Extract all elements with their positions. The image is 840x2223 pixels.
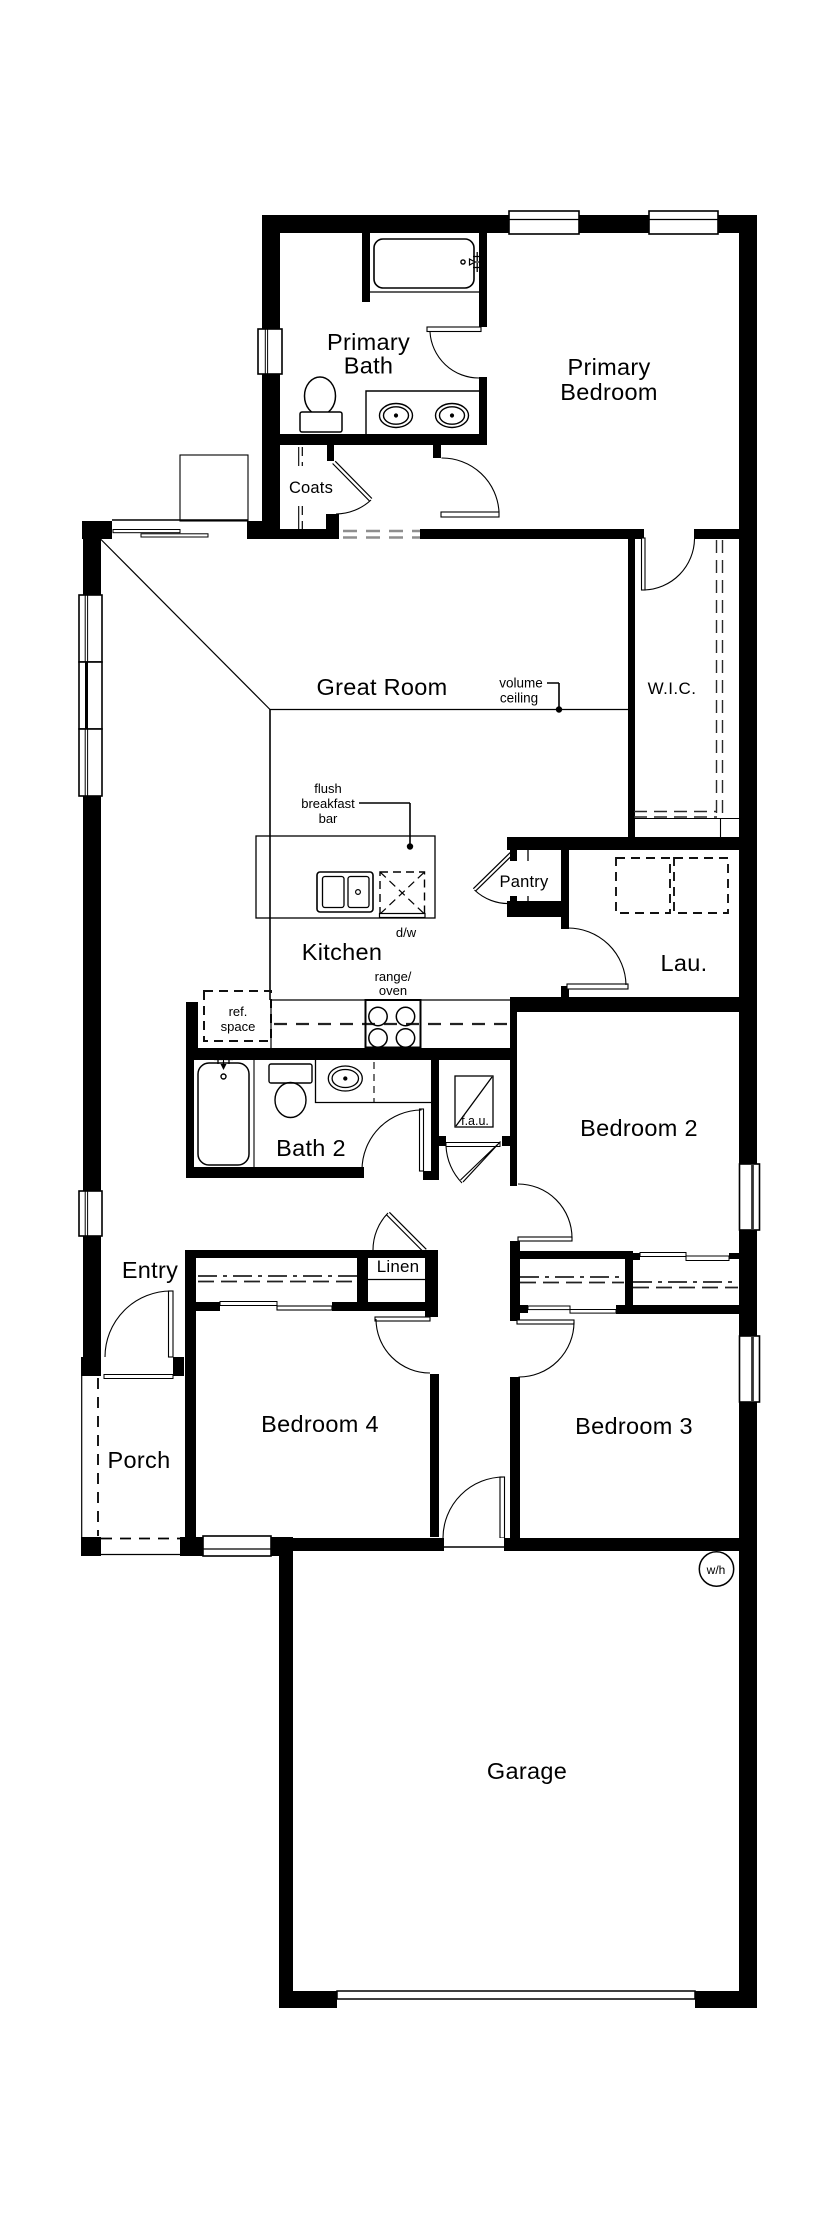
svg-text:space: space (221, 1019, 256, 1034)
svg-text:Entry: Entry (122, 1257, 178, 1283)
svg-text:Linen: Linen (377, 1257, 420, 1276)
svg-text:Bath: Bath (344, 353, 394, 379)
svg-text:ref.: ref. (229, 1004, 248, 1019)
svg-text:Coats: Coats (289, 479, 333, 497)
svg-text:flush: flush (314, 781, 341, 796)
svg-text:breakfast: breakfast (301, 796, 355, 811)
svg-text:ceiling: ceiling (500, 691, 538, 706)
svg-text:bar: bar (319, 811, 338, 826)
svg-text:range/: range/ (375, 969, 412, 984)
svg-text:oven: oven (379, 983, 407, 998)
svg-text:Garage: Garage (487, 1758, 567, 1784)
svg-text:Kitchen: Kitchen (302, 939, 382, 965)
svg-text:f.a.u.: f.a.u. (461, 1114, 489, 1128)
svg-text:Pantry: Pantry (500, 873, 549, 891)
svg-text:volume: volume (499, 676, 543, 691)
svg-text:Bedroom: Bedroom (560, 379, 657, 405)
svg-text:Bath 2: Bath 2 (276, 1135, 346, 1161)
svg-text:Bedroom 3: Bedroom 3 (575, 1413, 693, 1439)
svg-text:d/w: d/w (396, 925, 417, 940)
svg-text:Porch: Porch (108, 1447, 171, 1473)
svg-text:Bedroom 2: Bedroom 2 (580, 1115, 698, 1141)
svg-text:Bedroom 4: Bedroom 4 (261, 1411, 379, 1437)
svg-text:Lau.: Lau. (661, 950, 708, 976)
svg-text:W.I.C.: W.I.C. (648, 679, 697, 698)
svg-text:Great Room: Great Room (317, 674, 448, 700)
svg-text:Primary: Primary (327, 329, 410, 355)
svg-text:w/h: w/h (706, 1563, 726, 1577)
svg-text:Primary: Primary (567, 354, 650, 380)
